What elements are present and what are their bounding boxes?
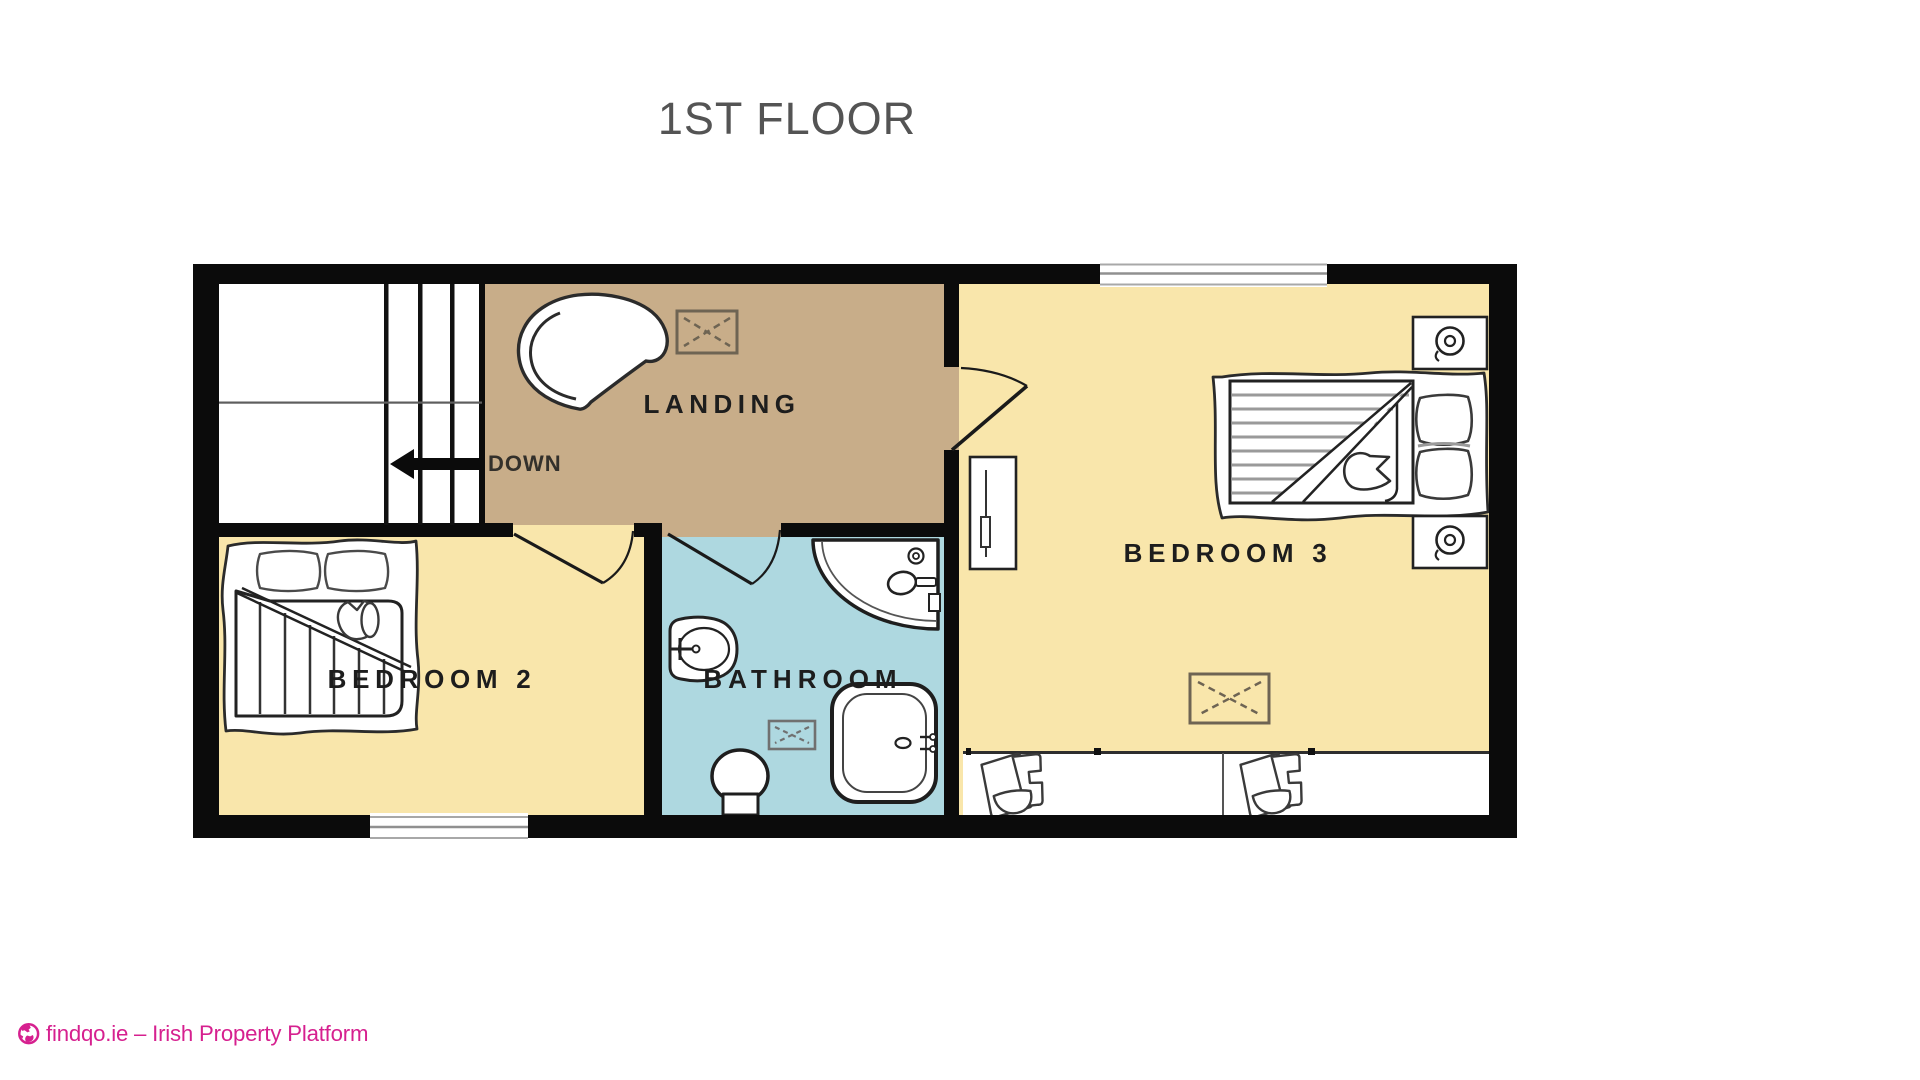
svg-text:BATHROOM: BATHROOM xyxy=(703,664,902,694)
svg-text:DOWN: DOWN xyxy=(488,451,562,476)
svg-text:BEDROOM 3: BEDROOM 3 xyxy=(1124,538,1333,568)
svg-text:BEDROOM 2: BEDROOM 2 xyxy=(328,664,537,694)
svg-text:1ST FLOOR: 1ST FLOOR xyxy=(658,93,916,144)
svg-text:LANDING: LANDING xyxy=(644,389,801,419)
svg-text:findqo.ie – Irish Property Pla: findqo.ie – Irish Property Platform xyxy=(46,1021,368,1046)
